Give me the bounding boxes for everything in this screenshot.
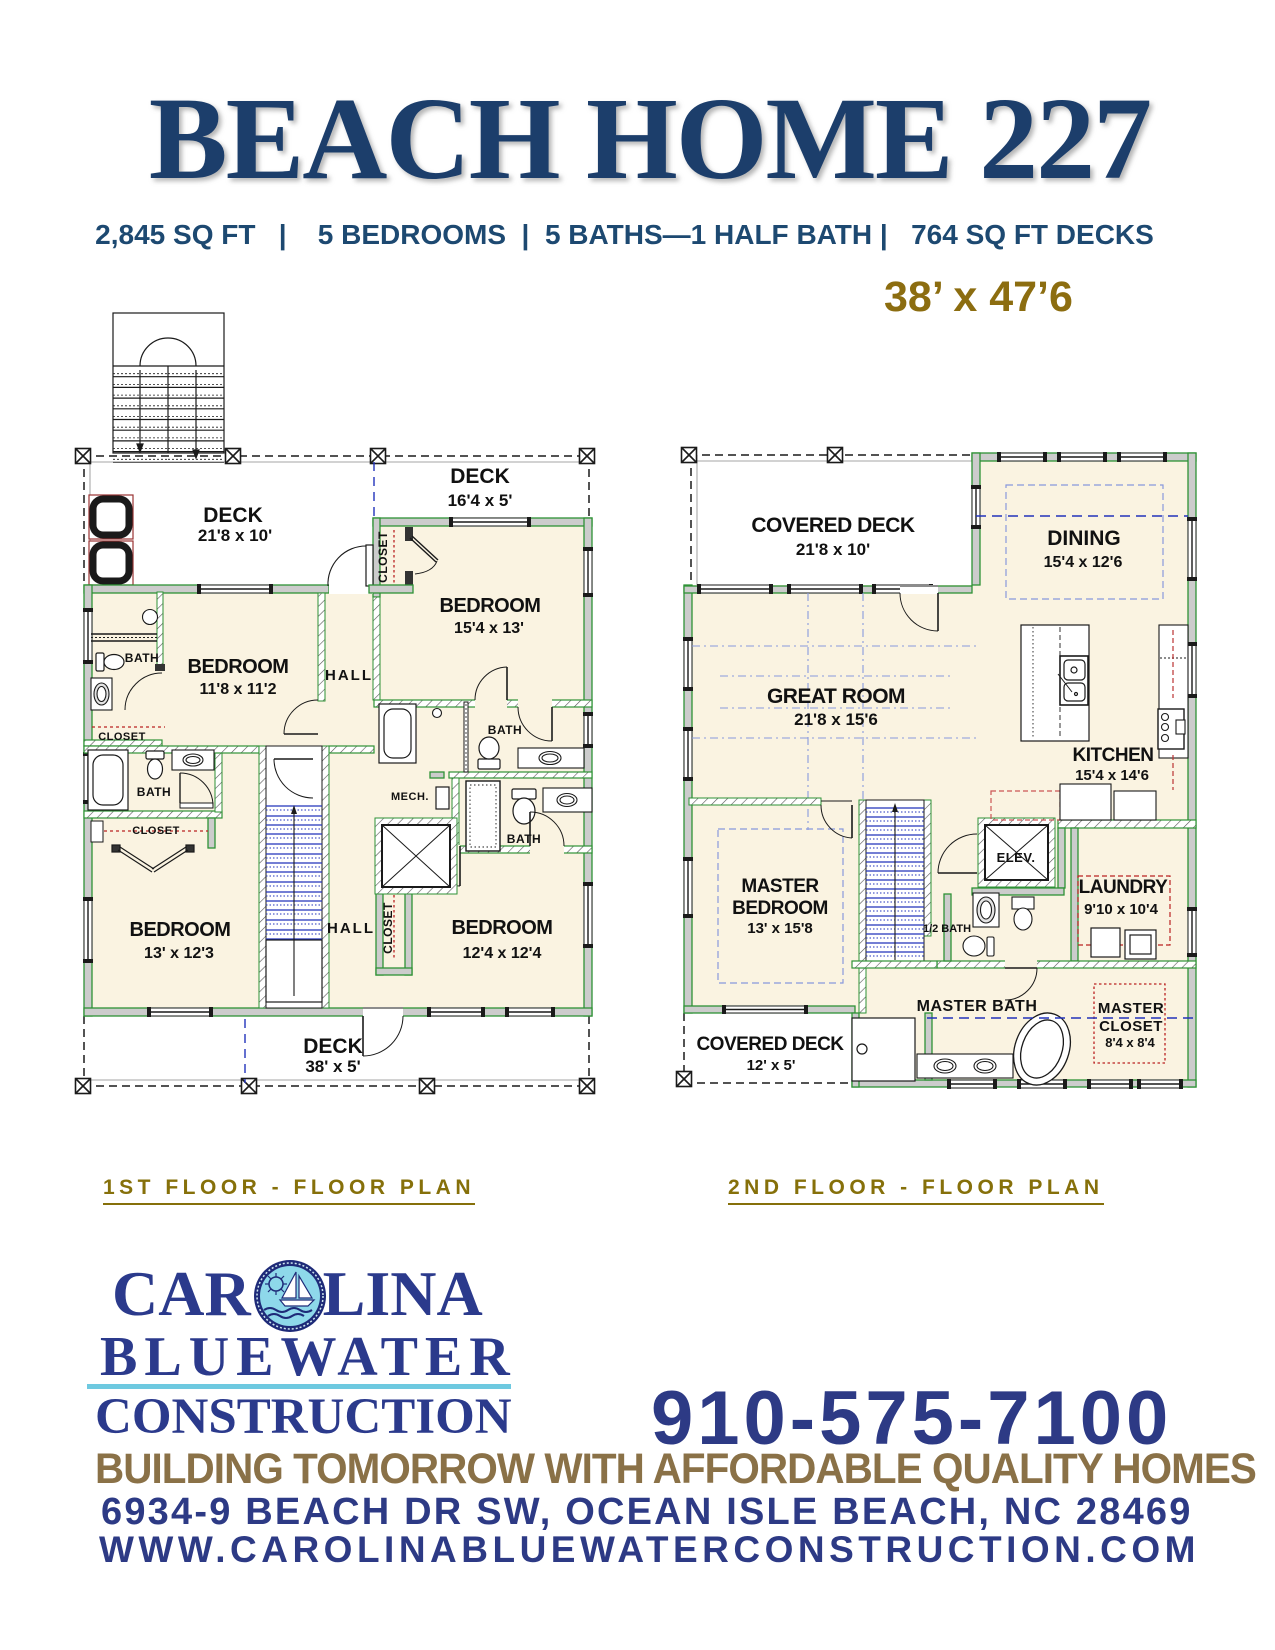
svg-text:HALL: HALL — [325, 667, 373, 684]
svg-text:8'4 x 8'4: 8'4 x 8'4 — [1105, 1035, 1155, 1050]
svg-text:BATH: BATH — [507, 832, 541, 846]
svg-text:21'8 x 10': 21'8 x 10' — [796, 540, 870, 559]
svg-text:13' x 15'8: 13' x 15'8 — [747, 920, 813, 937]
svg-text:BEDROOM: BEDROOM — [452, 917, 553, 939]
svg-text:CLOSET: CLOSET — [376, 531, 390, 583]
svg-text:21'8 x 10': 21'8 x 10' — [198, 526, 272, 545]
svg-text:MASTER: MASTER — [1098, 1000, 1164, 1017]
svg-text:LAUNDRY: LAUNDRY — [1079, 877, 1169, 898]
svg-text:MECH.: MECH. — [391, 791, 429, 803]
svg-text:CLOSET: CLOSET — [1099, 1018, 1163, 1035]
svg-text:13' x 12'3: 13' x 12'3 — [144, 945, 214, 962]
svg-text:38' x 5': 38' x 5' — [305, 1057, 360, 1076]
svg-text:CLOSET: CLOSET — [381, 902, 395, 954]
svg-text:COVERED DECK: COVERED DECK — [751, 514, 915, 537]
svg-text:MASTER BATH: MASTER BATH — [917, 998, 1038, 1015]
svg-text:BEDROOM: BEDROOM — [440, 595, 541, 617]
svg-text:BATH: BATH — [488, 723, 522, 737]
svg-text:KITCHEN: KITCHEN — [1073, 745, 1154, 766]
svg-text:COVERED DECK: COVERED DECK — [696, 1034, 844, 1055]
svg-text:DECK: DECK — [450, 465, 510, 488]
svg-text:DECK: DECK — [303, 1035, 363, 1058]
svg-text:12'4 x 12'4: 12'4 x 12'4 — [463, 945, 542, 962]
svg-text:9'10 x 10'4: 9'10 x 10'4 — [1084, 901, 1159, 918]
svg-text:HALL: HALL — [327, 920, 375, 937]
svg-text:15'4 x 14'6: 15'4 x 14'6 — [1075, 767, 1149, 784]
svg-text:ELEV.: ELEV. — [997, 850, 1036, 865]
svg-text:CLOSET: CLOSET — [132, 825, 180, 837]
svg-text:15'4 x 12'6: 15'4 x 12'6 — [1044, 554, 1123, 571]
svg-text:MASTER: MASTER — [741, 876, 819, 897]
svg-text:11'8 x 11'2: 11'8 x 11'2 — [199, 681, 276, 698]
svg-text:BEDROOM: BEDROOM — [732, 898, 828, 919]
svg-text:CLOSET: CLOSET — [98, 731, 146, 743]
svg-text:DECK: DECK — [203, 504, 263, 527]
svg-text:BATH: BATH — [137, 785, 171, 799]
svg-text:GREAT ROOM: GREAT ROOM — [767, 685, 905, 708]
svg-text:1/2 BATH: 1/2 BATH — [923, 923, 971, 935]
svg-text:15'4 x 13': 15'4 x 13' — [454, 620, 524, 637]
svg-text:12' x 5': 12' x 5' — [747, 1057, 796, 1074]
svg-text:16'4 x 5': 16'4 x 5' — [448, 491, 513, 510]
svg-text:21'8 x 15'6: 21'8 x 15'6 — [794, 710, 878, 729]
svg-text:DINING: DINING — [1047, 527, 1121, 550]
svg-text:BATH: BATH — [125, 651, 159, 665]
svg-text:BEDROOM: BEDROOM — [188, 656, 289, 678]
svg-text:BEDROOM: BEDROOM — [130, 919, 231, 941]
